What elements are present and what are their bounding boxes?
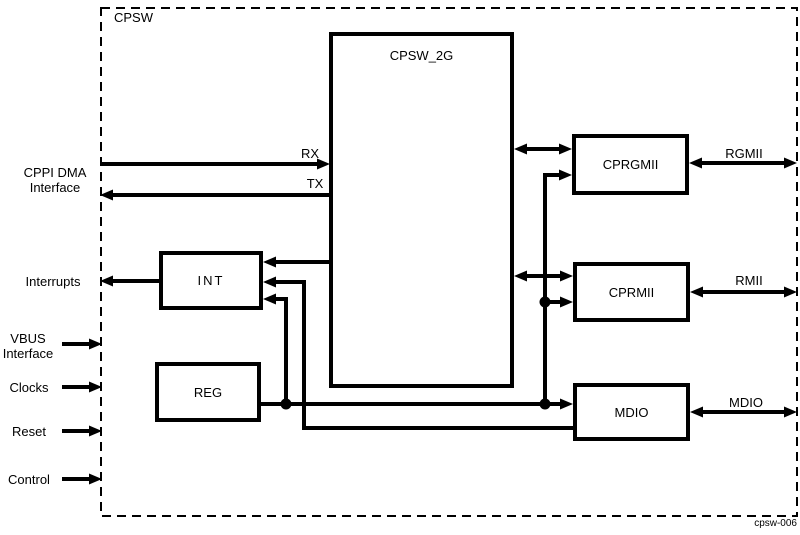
block-reg: REG	[155, 362, 261, 422]
label-control: Control	[0, 472, 58, 487]
reg-to-cprmii-arrowhead	[560, 297, 573, 308]
label-cppi-dma-interface: CPPI DMA Interface	[5, 165, 105, 195]
label-rmii: RMII	[719, 273, 779, 288]
label-interrupts: Interrupts	[3, 274, 103, 289]
block-cpsw-2g-label: CPSW_2G	[390, 48, 454, 63]
block-reg-label: REG	[194, 385, 222, 400]
rmii-right-arrowhead	[784, 287, 797, 298]
reg-to-mdio-arrowhead	[560, 399, 573, 410]
rgmii-left-arrowhead	[689, 158, 702, 169]
label-clocks: Clocks	[0, 380, 58, 395]
figure-id-watermark: cpsw-006	[697, 518, 797, 530]
cpsw-boundary-title: CPSW	[114, 10, 153, 25]
label-mdio-port: MDIO	[716, 395, 776, 410]
junction-dot-reg-int	[281, 399, 292, 410]
block-cprgmii: CPRGMII	[572, 134, 689, 195]
label-vbus-interface: VBUS Interface	[0, 331, 56, 361]
mdio-left-arrowhead	[690, 407, 703, 418]
cprmii-to-cpsw2g-arrowhead	[514, 271, 527, 282]
rgmii-right-arrowhead	[784, 158, 797, 169]
label-rx: RX	[280, 146, 340, 161]
int-input3-arrowhead	[263, 294, 276, 305]
label-tx: TX	[285, 176, 345, 191]
block-cpsw-2g: CPSW_2G	[329, 32, 514, 388]
cpsw-block-diagram: CPSW CPSW_2G INT REG CPRGMII CPRMII MDIO…	[0, 0, 800, 535]
block-cprmii: CPRMII	[573, 262, 690, 322]
block-mdio: MDIO	[573, 383, 690, 441]
junction-dot-trunk-mdio	[540, 399, 551, 410]
junction-dot-trunk-cprmii	[540, 297, 551, 308]
reg-bus-trunk	[545, 175, 561, 404]
int-input1-arrowhead	[263, 257, 276, 268]
cprgmii-to-cpsw2g-arrowhead	[514, 144, 527, 155]
block-cprmii-label: CPRMII	[609, 285, 655, 300]
label-rgmii: RGMII	[714, 146, 774, 161]
cpsw2g-to-cprmii-arrowhead	[560, 271, 573, 282]
cpsw2g-to-cprgmii-arrowhead	[559, 144, 572, 155]
rmii-left-arrowhead	[690, 287, 703, 298]
mdio-right-arrowhead	[784, 407, 797, 418]
block-int-label: INT	[198, 273, 225, 288]
block-mdio-label: MDIO	[615, 405, 649, 420]
int-input2-arrowhead	[263, 277, 276, 288]
block-int: INT	[159, 251, 263, 310]
int-reg-branch	[274, 299, 286, 404]
reg-to-cprgmii-arrowhead	[559, 170, 572, 181]
label-reset: Reset	[0, 424, 58, 439]
block-cprgmii-label: CPRGMII	[603, 157, 659, 172]
